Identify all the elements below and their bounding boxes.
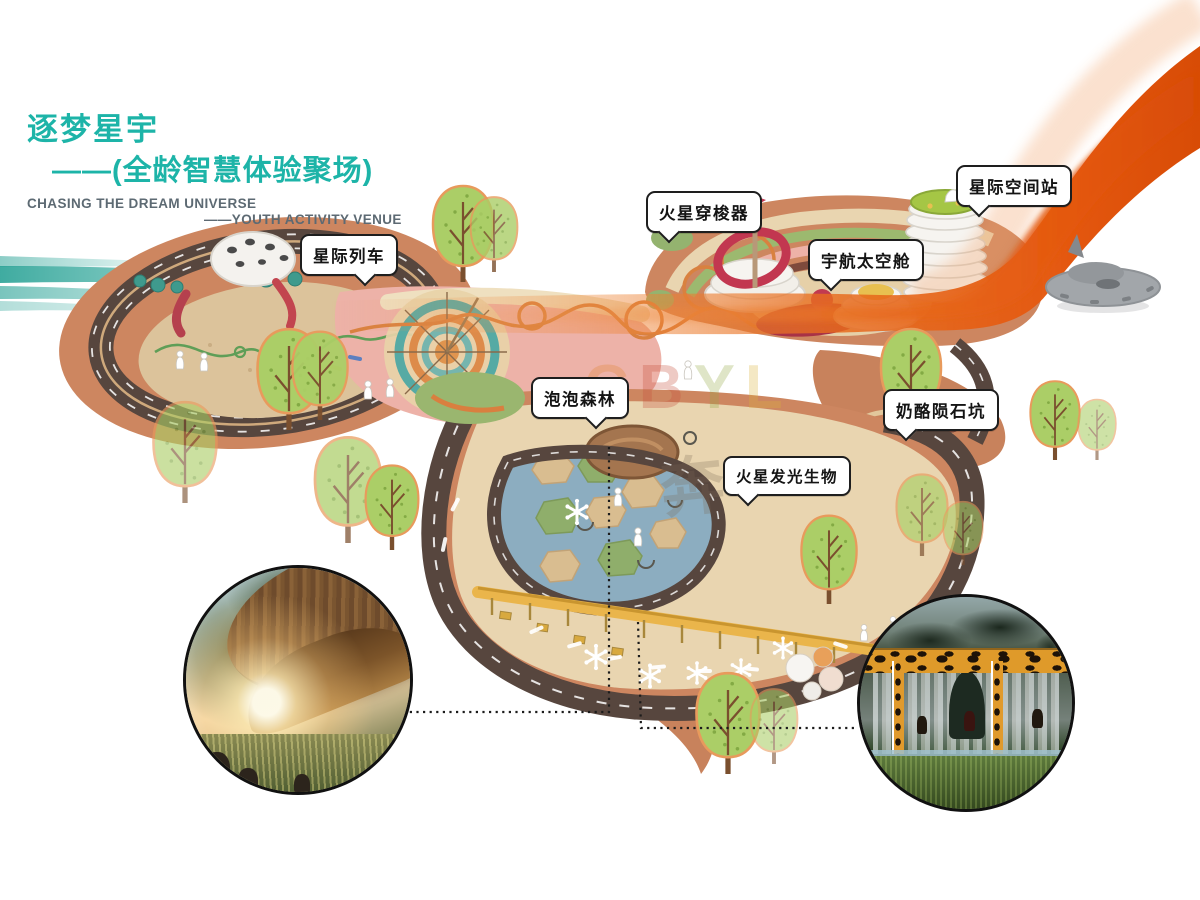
lawn-foreground <box>860 756 1072 809</box>
inset-photo-swing-pavilion <box>857 594 1075 812</box>
inset-photo-canopy-pavilion <box>183 565 413 795</box>
spotted-orange-post <box>892 661 904 754</box>
callout-label: 火星发光生物 <box>736 469 838 486</box>
spotted-orange-post <box>991 661 1003 754</box>
callout-mars-glowing-creature: 火星发光生物 <box>723 456 851 496</box>
person-on-swing <box>1032 709 1043 728</box>
callout-label: 泡泡森林 <box>544 391 616 409</box>
title-english: CHASING THE DREAM UNIVERSE <box>27 196 256 211</box>
subtitle-chinese: ——(全龄智慧体验聚场) <box>52 147 373 189</box>
callout-space-station: 星际空间站 <box>956 165 1072 207</box>
person-silhouette <box>238 768 258 794</box>
callout-label: 星际空间站 <box>969 179 1059 197</box>
callout-star-train: 星际列车 <box>300 234 398 276</box>
callout-label: 星际列车 <box>313 248 385 266</box>
person-silhouette <box>294 774 310 795</box>
title-chinese: 逐梦星宇 <box>27 104 159 149</box>
person-silhouette <box>204 752 230 786</box>
person-on-swing <box>964 711 975 731</box>
callout-label: 火星穿梭器 <box>659 205 749 223</box>
callout-astronaut-capsule: 宇航太空舱 <box>808 239 924 281</box>
callout-cheese-crater: 奶酪陨石坑 <box>883 389 999 431</box>
callout-label: 宇航太空舱 <box>821 253 911 271</box>
callout-label: 奶酪陨石坑 <box>896 403 986 421</box>
callout-bubble-forest: 泡泡森林 <box>531 377 629 419</box>
subtitle-english: ——YOUTH ACTIVITY VENUE <box>204 212 402 227</box>
presentation-slide: 逐梦星宇 ——(全龄智慧体验聚场) CHASING THE DREAM UNIV… <box>0 0 1200 900</box>
callout-mars-shuttle: 火星穿梭器 <box>646 191 762 233</box>
person-on-swing <box>917 716 927 734</box>
